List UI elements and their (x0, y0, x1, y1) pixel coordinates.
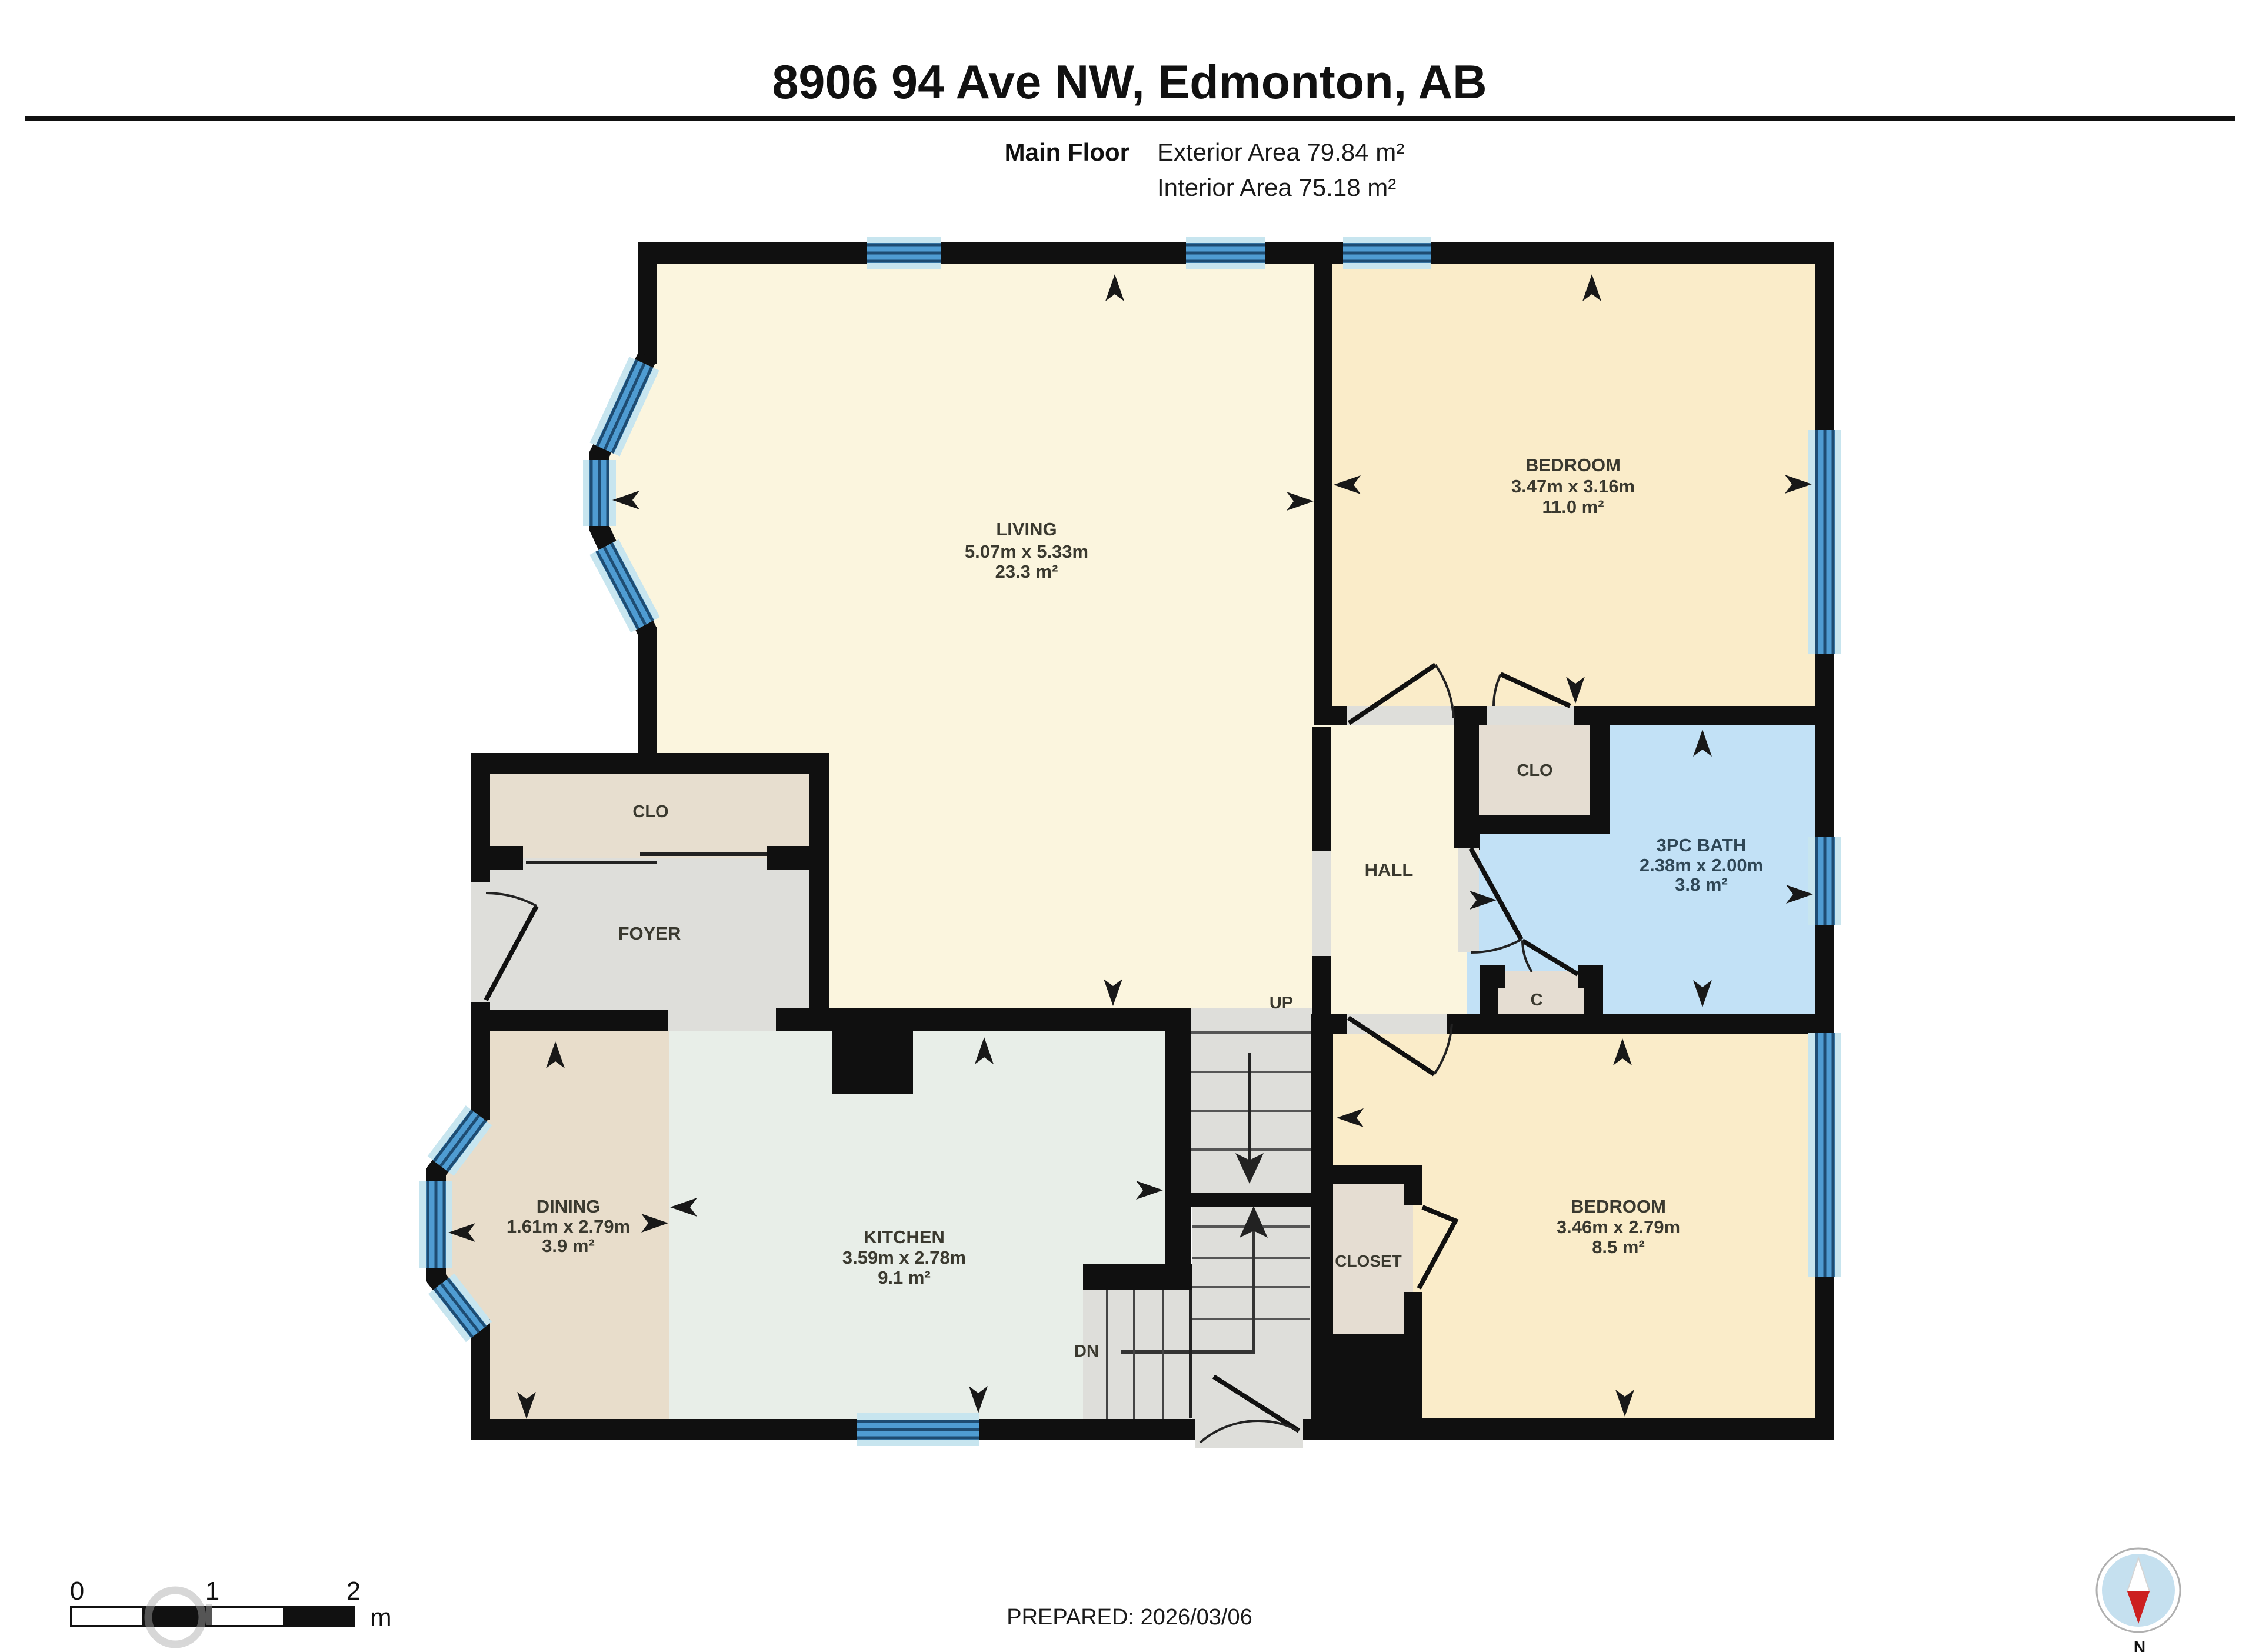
svg-text:LIVING: LIVING (996, 519, 1057, 539)
svg-text:3.59m x 2.78m: 3.59m x 2.78m (842, 1247, 966, 1268)
svg-text:KITCHEN: KITCHEN (864, 1227, 945, 1247)
svg-text:8.5 m²: 8.5 m² (1592, 1237, 1645, 1257)
svg-text:3.47m x 3.16m: 3.47m x 3.16m (1511, 476, 1635, 497)
svg-text:DN: DN (1074, 1342, 1099, 1361)
svg-text:UP: UP (1270, 994, 1293, 1012)
svg-text:1: 1 (205, 1577, 219, 1606)
svg-text:m: m (370, 1603, 392, 1632)
svg-text:DINING: DINING (537, 1196, 601, 1217)
svg-text:CLO: CLO (632, 802, 668, 821)
svg-text:BEDROOM: BEDROOM (1571, 1196, 1666, 1217)
svg-text:3.9 m²: 3.9 m² (542, 1235, 595, 1256)
svg-text:CLOSET: CLOSET (1335, 1252, 1402, 1270)
svg-text:1.61m x 2.79m: 1.61m x 2.79m (507, 1216, 630, 1237)
svg-text:BEDROOM: BEDROOM (1525, 455, 1621, 475)
svg-text:2.38m x 2.00m: 2.38m x 2.00m (1640, 855, 1763, 875)
svg-text:FOYER: FOYER (618, 923, 681, 944)
svg-text:3.8 m²: 3.8 m² (1675, 874, 1728, 895)
svg-text:0: 0 (70, 1577, 84, 1606)
svg-text:23.3 m²: 23.3 m² (995, 561, 1058, 582)
svg-text:C: C (1531, 991, 1543, 1010)
svg-text:3.46m x 2.79m: 3.46m x 2.79m (1557, 1217, 1680, 1237)
svg-text:Exterior Area 79.84 m²: Exterior Area 79.84 m² (1157, 138, 1404, 166)
svg-text:5.07m x 5.33m: 5.07m x 5.33m (965, 541, 1088, 562)
svg-text:HALL: HALL (1365, 860, 1414, 880)
svg-text:N: N (2134, 1638, 2145, 1652)
svg-text:9.1 m²: 9.1 m² (878, 1267, 931, 1288)
svg-text:PREPARED: 2026/03/06: PREPARED: 2026/03/06 (1007, 1605, 1252, 1630)
svg-text:11.0 m²: 11.0 m² (1542, 497, 1604, 517)
svg-text:3PC BATH: 3PC BATH (1657, 835, 1747, 855)
svg-text:Interior Area 75.18 m²: Interior Area 75.18 m² (1157, 174, 1396, 201)
svg-text:Main Floor: Main Floor (1005, 138, 1129, 166)
svg-text:8906 94 Ave NW, Edmonton, AB: 8906 94 Ave NW, Edmonton, AB (772, 56, 1487, 109)
svg-text:2: 2 (346, 1577, 361, 1606)
svg-text:CLO: CLO (1517, 761, 1552, 780)
